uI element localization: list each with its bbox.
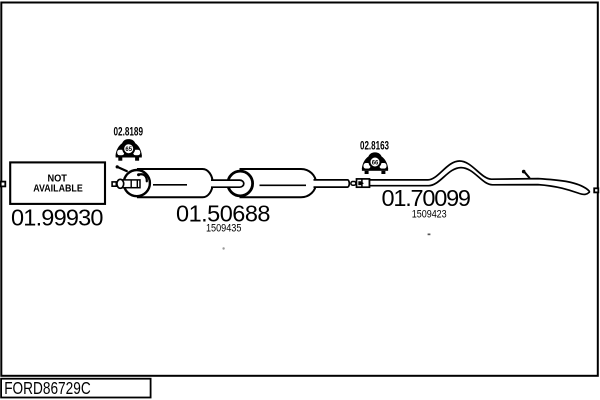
svg-text:65: 65	[125, 146, 132, 153]
svg-text:AVAILABLE: AVAILABLE	[33, 184, 83, 195]
svg-text:01.70099: 01.70099	[382, 185, 472, 211]
svg-text:FORD86729C: FORD86729C	[4, 378, 91, 398]
svg-text:01.99930: 01.99930	[11, 205, 104, 231]
svg-text:02.8189: 02.8189	[114, 124, 144, 138]
svg-text:NOT: NOT	[47, 173, 67, 184]
svg-text:1509423: 1509423	[412, 209, 447, 221]
svg-text:66: 66	[372, 159, 379, 166]
svg-text:1509435: 1509435	[206, 223, 242, 235]
svg-text:02.8163: 02.8163	[360, 139, 389, 153]
